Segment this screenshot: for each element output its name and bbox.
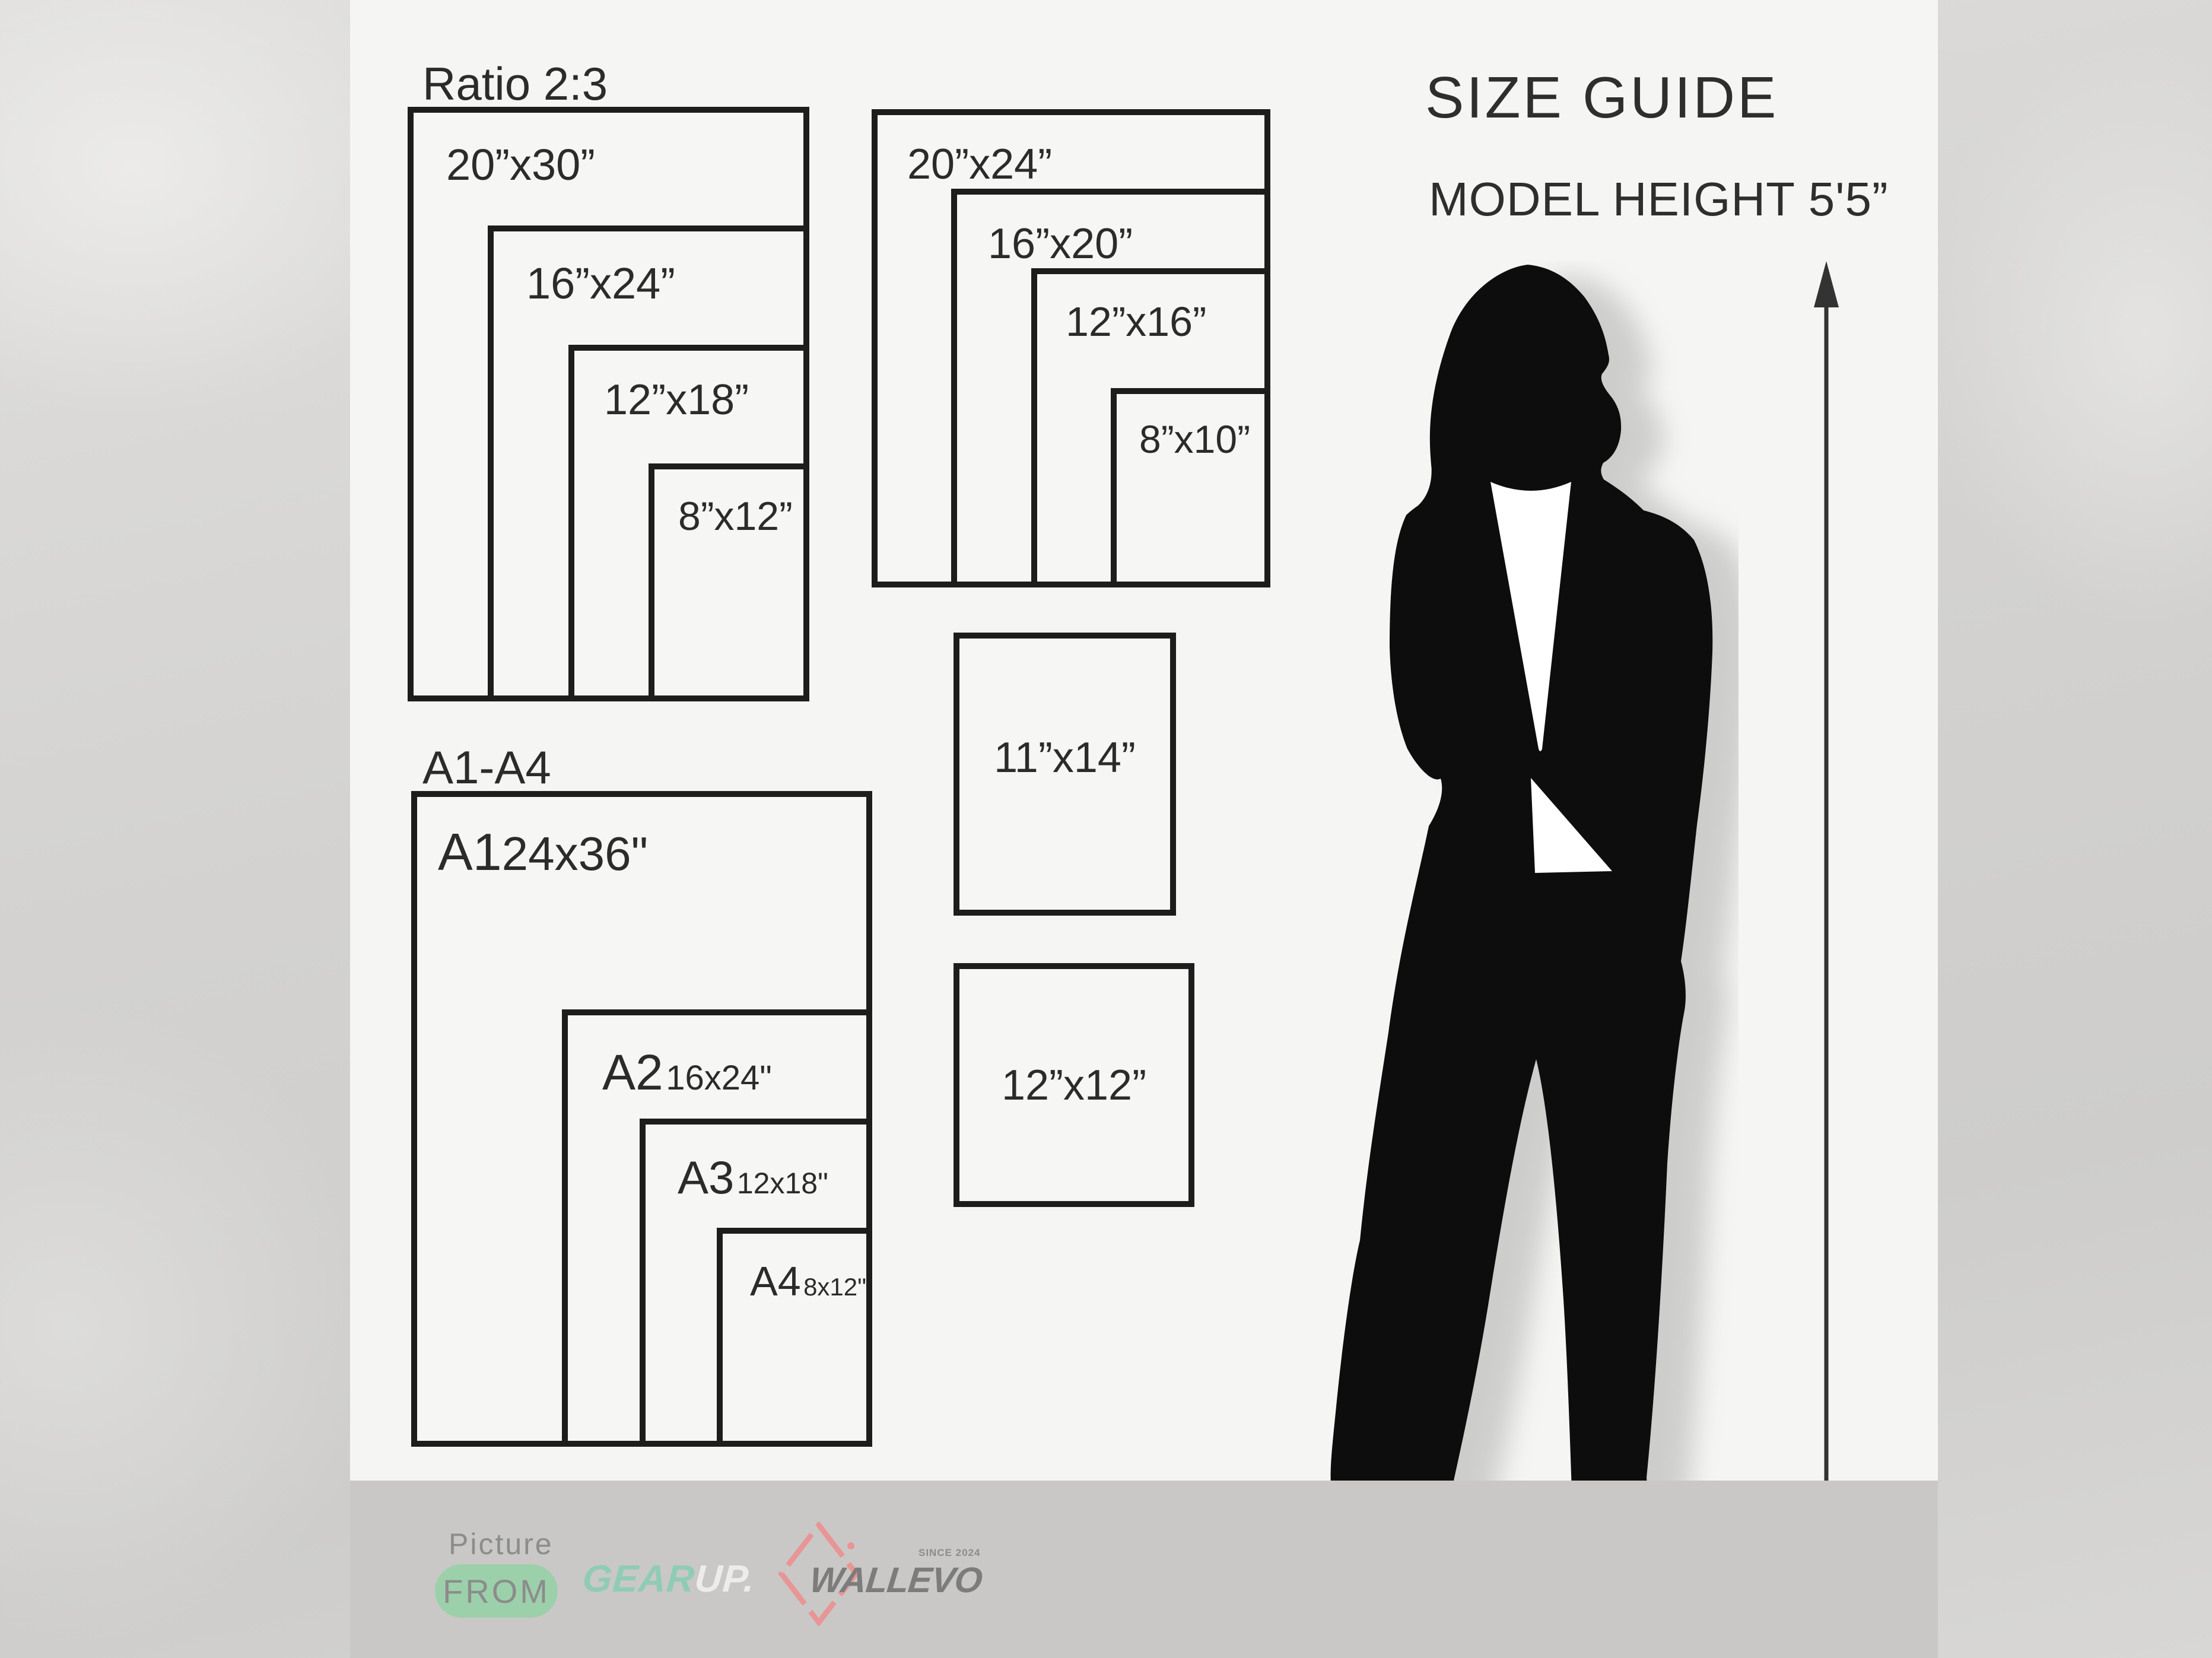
size-label-16x24: 16”x24” [526, 258, 675, 309]
gearup-logo: GEARUP. [581, 1557, 757, 1600]
size-box-12x12: 12”x12” [954, 963, 1194, 1207]
ratio-group-heading: Ratio 2:3 [422, 57, 608, 111]
a4-code: A4 [750, 1258, 801, 1304]
size-box-8x10: 8”x10” [1111, 388, 1270, 587]
footer-bar: Picture FROM GEARUP. WALLEVO SINCE 2024 [350, 1481, 1938, 1658]
a2-size: 16x24" [666, 1059, 772, 1097]
wallevo-since: SINCE 2024 [919, 1547, 981, 1559]
size-label-12x18: 12”x18” [604, 376, 749, 424]
wallevo-name: WALLEVO [808, 1559, 984, 1600]
size-label-20x30: 20”x30” [446, 139, 595, 190]
from-label: FROM [443, 1572, 550, 1611]
height-arrow [1803, 259, 1850, 1552]
size-box-8x12: 8”x12” [649, 463, 809, 701]
size-label-16x20: 16”x20” [988, 220, 1133, 268]
size-box-11x14: 11”x14” [954, 633, 1176, 916]
gearup-logo-gear: GEAR [581, 1557, 696, 1600]
a4-size: 8x12" [803, 1273, 866, 1301]
size-label-20x24: 20”x24” [907, 140, 1052, 189]
from-badge: FROM [435, 1564, 558, 1618]
size-label-11x14: 11”x14” [959, 733, 1170, 782]
a-series-heading: A1-A4 [422, 741, 551, 795]
a1-code: A1 [438, 822, 502, 881]
size-guide-infographic: Ratio 2:3 20”x30” 16”x24” 12”x18” 8”x12”… [0, 0, 2212, 1658]
a3-size: 12x18" [737, 1167, 828, 1200]
model-height-label: MODEL HEIGHT 5'5” [1429, 172, 1889, 227]
gearup-logo-up: UP. [693, 1557, 756, 1600]
size-label-8x10: 8”x10” [1139, 417, 1250, 462]
size-label-12x16: 12”x16” [1066, 298, 1206, 345]
size-label-8x12: 8”x12” [678, 493, 793, 539]
size-box-a4: A4 8x12" [717, 1228, 872, 1447]
size-label-12x12: 12”x12” [959, 1061, 1188, 1110]
content-panel: Ratio 2:3 20”x30” 16”x24” 12”x18” 8”x12”… [350, 0, 1938, 1658]
model-silhouette [1323, 261, 1739, 1555]
picture-label: Picture [449, 1527, 554, 1561]
a3-code: A3 [678, 1151, 734, 1203]
wallevo-logo: WALLEVO SINCE 2024 [765, 1516, 1133, 1647]
a2-code: A2 [602, 1044, 663, 1100]
a1-size: 24x36" [502, 827, 648, 880]
arrow-up-icon [1814, 261, 1839, 307]
page-title: SIZE GUIDE [1425, 64, 1778, 131]
